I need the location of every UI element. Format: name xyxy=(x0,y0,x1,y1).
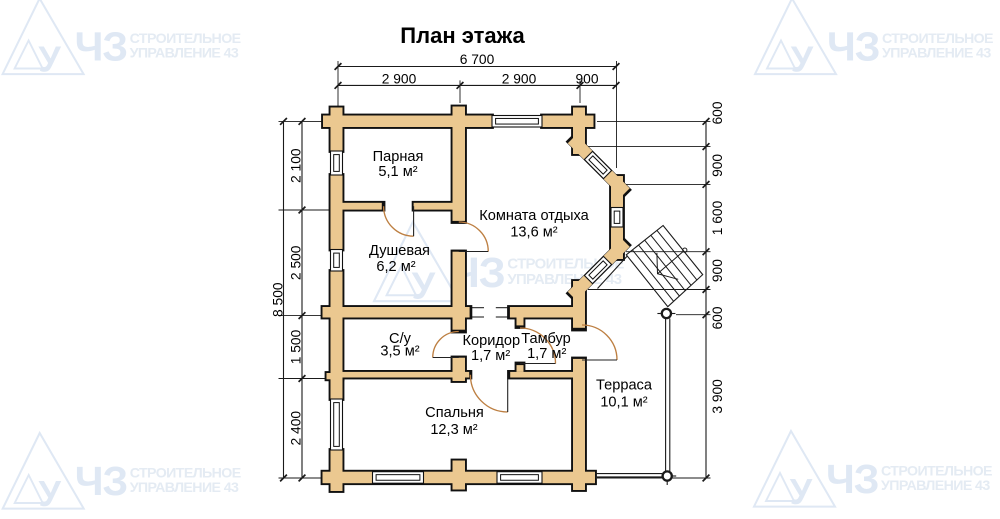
svg-text:СТРОИТЕЛЬНОЕ: СТРОИТЕЛЬНОЕ xyxy=(130,466,241,482)
svg-text:УПРАВЛЕНИЕ 43: УПРАВЛЕНИЕ 43 xyxy=(882,46,991,62)
svg-text:План этажа: План этажа xyxy=(400,23,525,48)
svg-text:13,6 м²: 13,6 м² xyxy=(510,225,557,241)
svg-text:1 600: 1 600 xyxy=(710,200,725,235)
svg-text:600: 600 xyxy=(710,101,725,124)
svg-text:Душевая: Душевая xyxy=(369,243,430,259)
svg-text:12,3 м²: 12,3 м² xyxy=(430,422,477,438)
svg-text:Спальня: Спальня xyxy=(425,405,484,421)
svg-text:У: У xyxy=(790,471,813,512)
svg-text:2 900: 2 900 xyxy=(502,72,537,87)
svg-text:ЧЗ: ЧЗ xyxy=(827,24,880,70)
svg-text:900: 900 xyxy=(710,259,725,282)
svg-text:5,1 м²: 5,1 м² xyxy=(378,164,417,180)
svg-text:Комната отдыха: Комната отдыха xyxy=(479,208,589,224)
svg-text:3,5 м²: 3,5 м² xyxy=(380,343,419,359)
svg-text:1,7 м²: 1,7 м² xyxy=(471,348,510,364)
svg-text:600: 600 xyxy=(710,306,725,329)
svg-text:СТРОИТЕЛЬНОЕ: СТРОИТЕЛЬНОЕ xyxy=(881,464,992,480)
svg-text:1,7 м²: 1,7 м² xyxy=(527,346,566,362)
svg-text:900: 900 xyxy=(710,154,725,177)
svg-text:СТРОИТЕЛЬНОЕ: СТРОИТЕЛЬНОЕ xyxy=(130,31,241,47)
svg-text:2 900: 2 900 xyxy=(382,72,417,87)
svg-text:6 700: 6 700 xyxy=(460,52,495,67)
svg-text:Парная: Парная xyxy=(373,149,424,165)
svg-text:2 100: 2 100 xyxy=(289,148,304,183)
svg-text:6,2 м²: 6,2 м² xyxy=(376,259,415,275)
svg-text:СТРОИТЕЛЬНОЕ: СТРОИТЕЛЬНОЕ xyxy=(882,31,993,47)
svg-text:2 500: 2 500 xyxy=(289,245,304,280)
svg-text:3 900: 3 900 xyxy=(710,379,725,414)
svg-text:УПРАВЛЕНИЕ 43: УПРАВЛЕНИЕ 43 xyxy=(881,478,990,494)
svg-text:10,1 м²: 10,1 м² xyxy=(600,395,647,411)
svg-text:У: У xyxy=(38,39,61,80)
svg-text:Терраса: Терраса xyxy=(596,378,653,394)
svg-text:УПРАВЛЕНИЕ 43: УПРАВЛЕНИЕ 43 xyxy=(130,46,239,62)
svg-text:ЧЗ: ЧЗ xyxy=(75,24,128,70)
svg-text:ЧЗ: ЧЗ xyxy=(826,456,879,502)
svg-text:УПРАВЛЕНИЕ 43: УПРАВЛЕНИЕ 43 xyxy=(507,272,621,288)
svg-text:2 400: 2 400 xyxy=(289,411,304,446)
svg-text:У: У xyxy=(791,39,814,80)
svg-text:1 500: 1 500 xyxy=(289,329,304,364)
svg-text:УПРАВЛЕНИЕ 43: УПРАВЛЕНИЕ 43 xyxy=(130,480,239,496)
svg-text:ЧЗ: ЧЗ xyxy=(75,458,128,504)
svg-text:8 500: 8 500 xyxy=(271,282,286,317)
svg-text:Коридор: Коридор xyxy=(462,333,520,349)
svg-text:У: У xyxy=(38,473,61,514)
svg-text:Тамбур: Тамбур xyxy=(521,331,571,347)
svg-text:900: 900 xyxy=(575,72,598,87)
